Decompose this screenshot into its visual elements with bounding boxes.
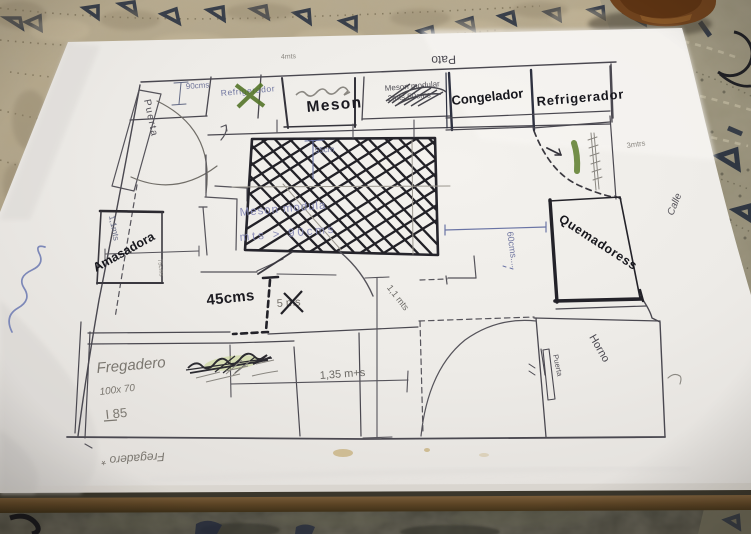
svg-text:Pato: Pato bbox=[431, 52, 456, 67]
svg-text:I 85: I 85 bbox=[105, 405, 128, 422]
svg-text:90cms: 90cms bbox=[186, 80, 210, 91]
svg-text:4mts: 4mts bbox=[281, 53, 297, 61]
svg-text:55cm: 55cm bbox=[315, 145, 335, 155]
